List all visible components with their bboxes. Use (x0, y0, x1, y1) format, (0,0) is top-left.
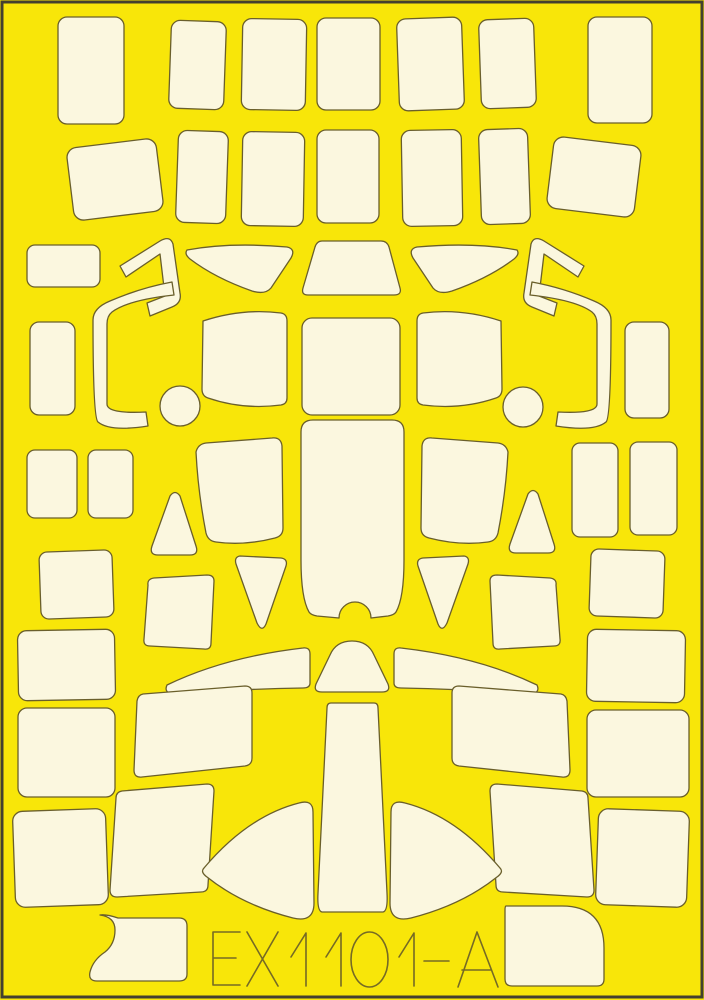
mask-right-col-rect-1 (586, 629, 685, 703)
mask-right-col-rect-2 (587, 710, 689, 797)
masks-layer (12, 17, 689, 986)
mask-circle-right (503, 387, 543, 427)
mask-row2-rect-3 (317, 130, 379, 223)
mask-windscreen-front (303, 241, 401, 295)
mask-tail-column (318, 703, 387, 912)
sheet-svg (0, 0, 704, 1000)
mask-quad-a-right (452, 686, 570, 777)
mask-top-rect-4 (317, 18, 380, 110)
mask-bottom-square-right (595, 808, 689, 907)
mask-quad-a-left (134, 686, 252, 777)
mask-quad-b-left (110, 784, 214, 897)
mask-top-rect-5 (396, 17, 464, 111)
mask-pair-right-2 (630, 442, 677, 535)
mask-windscreen-left (202, 312, 287, 407)
mask-left-col-rect-1 (17, 629, 115, 701)
mask-bottom-square-left (12, 808, 108, 907)
mask-pair-right-1 (572, 443, 618, 537)
mask-edge-tall-right (625, 322, 669, 418)
mask-row2-rect-5 (478, 128, 530, 225)
mask-canopy-side-left (196, 438, 283, 543)
mask-top-rect-6 (478, 18, 536, 109)
mask-top-rect-1 (58, 17, 124, 124)
mask-windscreen-right (417, 312, 502, 407)
mask-mid-quad-right (490, 575, 560, 649)
mask-row2-tilted-right (546, 136, 642, 218)
mask-pair-left-2 (88, 450, 133, 518)
mask-canopy-center (301, 420, 404, 618)
mask-sheet: EX1101-A (0, 0, 704, 1000)
mask-square-right (589, 549, 665, 619)
mask-row2-rect-4 (401, 129, 463, 226)
mask-bottom-right-block (505, 906, 604, 986)
mask-top-rect-3 (241, 18, 307, 110)
mask-row2-rect-2 (241, 131, 305, 226)
mask-circle-left (160, 386, 200, 426)
mask-canopy-side-right (421, 438, 508, 543)
mask-row2-tilted-left (66, 138, 164, 221)
mask-left-col-rect-2 (18, 708, 115, 797)
mask-edge-wide-left (27, 245, 100, 287)
mask-mid-quad-left (144, 575, 214, 649)
mask-quad-b-right (490, 784, 594, 897)
mask-top-rect-7 (588, 17, 652, 123)
mask-edge-tall-left (30, 322, 75, 415)
mask-row2-rect-1 (175, 130, 228, 224)
mask-pair-left-1 (27, 450, 77, 518)
mask-windscreen-center (302, 318, 400, 415)
mask-square-left (39, 550, 114, 620)
mask-top-rect-2 (168, 20, 226, 110)
